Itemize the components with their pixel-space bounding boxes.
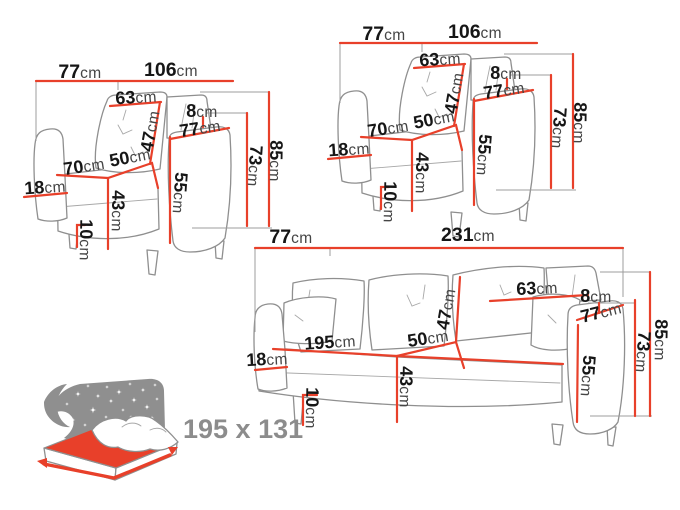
label-sofa-total-height: 85cm [651, 319, 672, 361]
label-sofa-seat-width: 195cm [304, 330, 357, 354]
sofa-leg-front-right [552, 424, 563, 445]
sofa-left-armrest [254, 304, 287, 391]
label-sofa-backrest-width: 63cm [516, 277, 558, 299]
diagram-svg: 77cm 106cm 63cm 8cm 77cm 47cm 70cm 50cm … [0, 0, 680, 510]
sofa-figure: 77cm 231cm 63cm 8cm 77cm 47cm 195cm 50cm… [246, 224, 672, 446]
label-sofa-overall-width: 231cm [441, 224, 495, 246]
bed-size-label: 195 x 131 [183, 414, 303, 444]
label-sofa-leg-height: 10cm [302, 387, 323, 429]
label-sofa-armrest-width: 18cm [246, 348, 288, 370]
label-sofa-overall-depth: 77cm [269, 226, 312, 248]
armchair-right [328, 21, 591, 237]
label-sofa-seat-height: 43cm [396, 366, 417, 408]
furniture-dimension-diagram: 77cm 106cm 63cm 8cm 77cm 47cm 70cm 50cm … [0, 0, 680, 510]
dim-line-sofa-armrest-height [577, 325, 578, 422]
sofa-bed-icon: 195 x 131 [37, 379, 303, 480]
armchair-left [24, 59, 287, 275]
